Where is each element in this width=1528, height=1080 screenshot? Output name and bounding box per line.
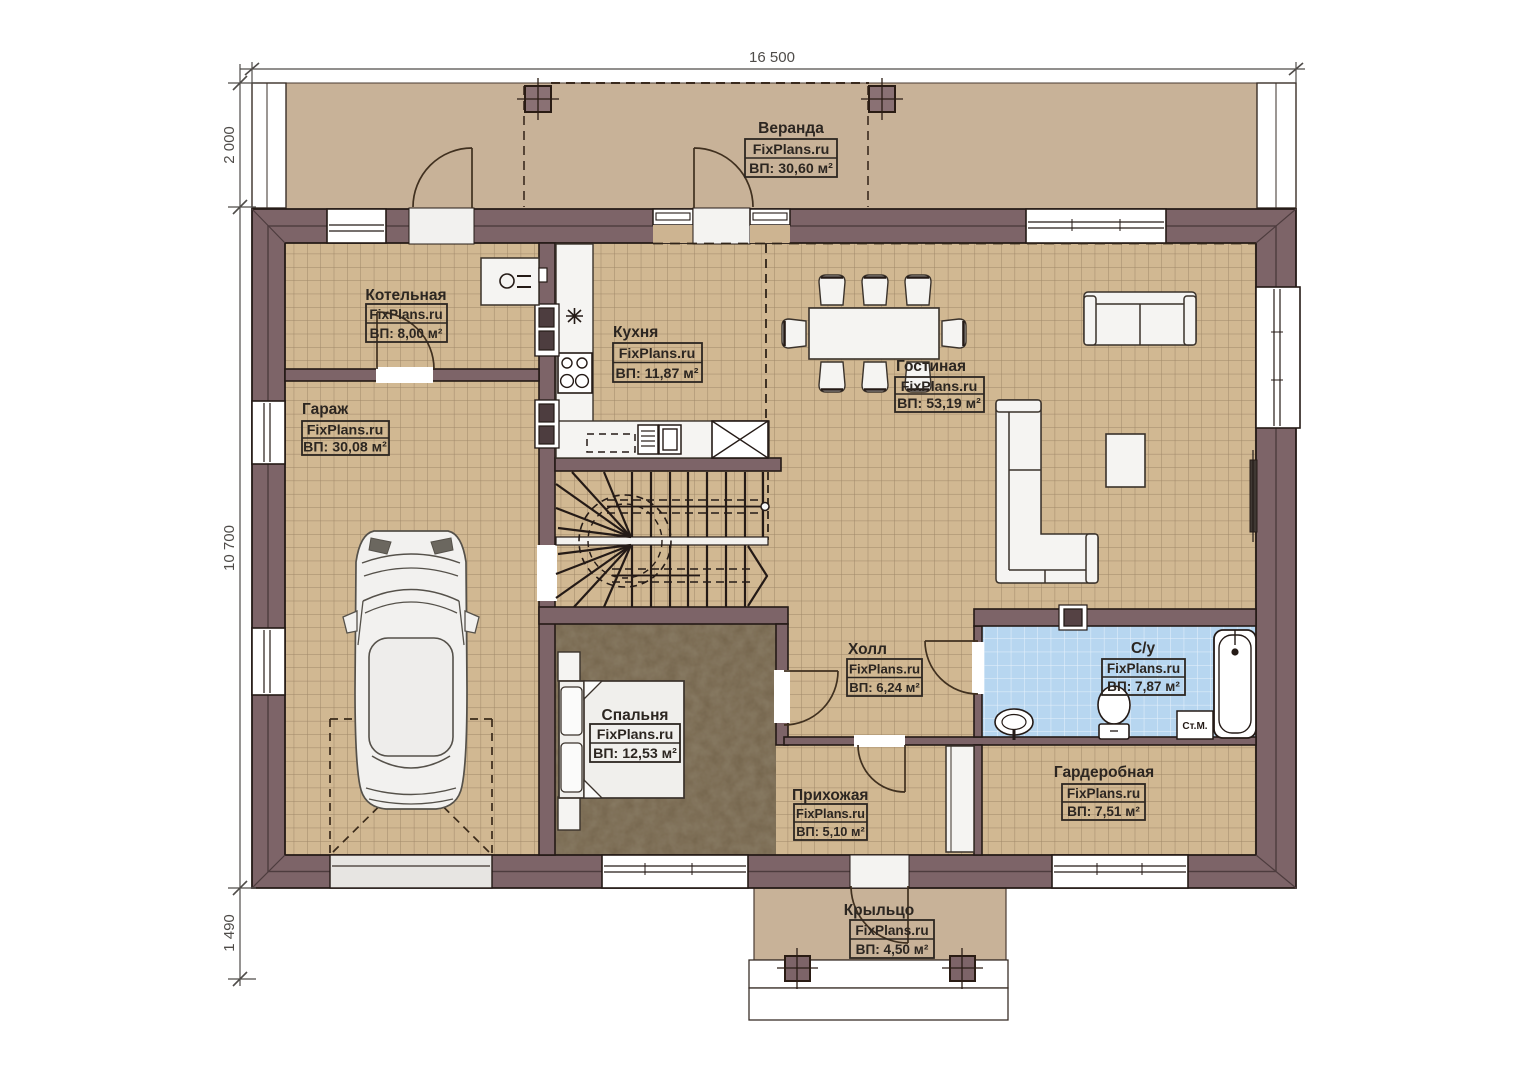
svg-text:FixPlans.ru: FixPlans.ru	[307, 423, 383, 439]
svg-text:ВП: 30,60 м²: ВП: 30,60 м²	[749, 161, 833, 177]
svg-text:Гостиная: Гостиная	[896, 358, 966, 375]
svg-text:FixPlans.ru: FixPlans.ru	[796, 806, 865, 821]
svg-text:2 000: 2 000	[221, 126, 238, 164]
svg-text:Кухня: Кухня	[613, 324, 658, 341]
svg-text:16 500: 16 500	[749, 49, 795, 66]
svg-text:FixPlans.ru: FixPlans.ru	[597, 727, 673, 743]
svg-text:FixPlans.ru: FixPlans.ru	[369, 307, 442, 322]
svg-text:Холл: Холл	[848, 641, 887, 658]
svg-text:ВП: 30,08 м²: ВП: 30,08 м²	[303, 440, 387, 456]
svg-text:Гардеробная: Гардеробная	[1054, 764, 1154, 781]
svg-text:Гараж: Гараж	[302, 401, 349, 418]
svg-text:Спальня: Спальня	[602, 707, 669, 724]
svg-text:FixPlans.ru: FixPlans.ru	[619, 346, 695, 362]
svg-text:FixPlans.ru: FixPlans.ru	[855, 923, 928, 938]
svg-text:ВП: 11,87 м²: ВП: 11,87 м²	[616, 366, 699, 382]
svg-text:Прихожая: Прихожая	[792, 787, 868, 804]
svg-text:ВП: 6,24 м²: ВП: 6,24 м²	[849, 680, 920, 695]
svg-text:ВП: 53,19 м²: ВП: 53,19 м²	[897, 396, 981, 412]
svg-text:Веранда: Веранда	[758, 120, 824, 137]
svg-text:ВП: 8,00 м²: ВП: 8,00 м²	[370, 326, 443, 341]
svg-text:FixPlans.ru: FixPlans.ru	[753, 142, 829, 158]
svg-text:С/у: С/у	[1131, 640, 1156, 657]
svg-text:1 490: 1 490	[221, 914, 238, 952]
svg-text:ВП: 5,10 м²: ВП: 5,10 м²	[796, 824, 864, 839]
svg-text:FixPlans.ru: FixPlans.ru	[1107, 661, 1180, 676]
svg-text:Ст.М.: Ст.М.	[1182, 721, 1207, 732]
svg-text:Крыльцо: Крыльцо	[844, 902, 915, 919]
svg-text:10 700: 10 700	[221, 525, 238, 571]
svg-text:FixPlans.ru: FixPlans.ru	[849, 662, 920, 677]
svg-text:ВП: 7,51 м²: ВП: 7,51 м²	[1067, 804, 1140, 819]
svg-text:Котельная: Котельная	[365, 287, 446, 304]
svg-text:FixPlans.ru: FixPlans.ru	[901, 379, 977, 395]
svg-text:ВП: 4,50 м²: ВП: 4,50 м²	[856, 942, 929, 957]
svg-text:FixPlans.ru: FixPlans.ru	[1067, 786, 1140, 801]
svg-text:ВП: 7,87 м²: ВП: 7,87 м²	[1107, 679, 1180, 694]
svg-text:ВП: 12,53 м²: ВП: 12,53 м²	[593, 746, 677, 762]
